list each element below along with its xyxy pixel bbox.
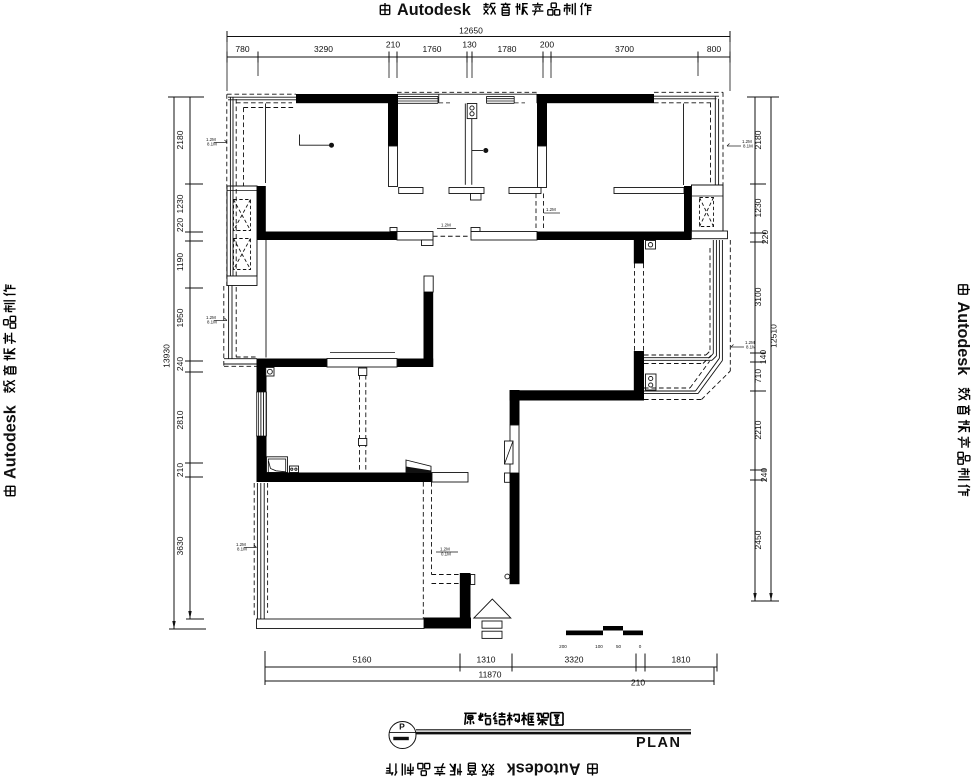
svg-text:100: 100: [595, 644, 603, 649]
svg-text:13930: 13930: [162, 344, 172, 368]
svg-text:1760: 1760: [423, 44, 442, 54]
svg-text:Autodesk: Autodesk: [397, 1, 472, 19]
svg-text:2450: 2450: [753, 530, 763, 549]
svg-text:2810: 2810: [175, 410, 185, 429]
svg-text:PLAN: PLAN: [636, 735, 681, 751]
svg-text:210: 210: [175, 463, 185, 477]
svg-text:3700: 3700: [615, 44, 634, 54]
svg-text:800: 800: [707, 44, 721, 54]
svg-text:8.1M: 8.1M: [743, 144, 753, 149]
svg-text:1230: 1230: [753, 198, 763, 217]
svg-text:220: 220: [760, 230, 770, 244]
svg-text:710: 710: [753, 369, 763, 383]
svg-text:1.2M: 1.2M: [441, 222, 451, 227]
svg-text:1810: 1810: [672, 655, 691, 665]
svg-text:12650: 12650: [459, 26, 483, 36]
svg-text:220: 220: [175, 218, 185, 232]
svg-text:1950: 1950: [175, 308, 185, 327]
svg-text:780: 780: [235, 44, 249, 54]
svg-text:130: 130: [462, 40, 476, 50]
svg-text:3320: 3320: [565, 655, 584, 665]
svg-text:1310: 1310: [477, 655, 496, 665]
svg-text:1190: 1190: [175, 253, 185, 272]
svg-text:2210: 2210: [753, 420, 763, 439]
svg-text:210: 210: [386, 40, 400, 50]
svg-text:0: 0: [639, 644, 642, 649]
svg-text:140: 140: [758, 350, 768, 364]
svg-text:11870: 11870: [478, 670, 501, 680]
svg-text:Autodesk: Autodesk: [506, 759, 581, 777]
svg-text:Autodesk: Autodesk: [954, 302, 972, 377]
svg-text:5160: 5160: [353, 655, 372, 665]
svg-text:3630: 3630: [175, 536, 185, 555]
svg-text:210: 210: [631, 678, 645, 688]
svg-text:1.2M: 1.2M: [546, 207, 556, 212]
svg-text:200: 200: [540, 40, 554, 50]
svg-text:P: P: [399, 722, 405, 732]
svg-text:3100: 3100: [753, 287, 763, 306]
svg-text:2180: 2180: [175, 130, 185, 149]
svg-text:3290: 3290: [314, 44, 333, 54]
svg-text:Autodesk: Autodesk: [2, 404, 20, 479]
svg-text:1230: 1230: [175, 194, 185, 213]
svg-text:50: 50: [616, 644, 622, 649]
svg-text:2180: 2180: [753, 130, 763, 149]
svg-text:1780: 1780: [498, 44, 517, 54]
svg-text:240: 240: [759, 468, 769, 482]
svg-text:240: 240: [175, 357, 185, 371]
svg-text:8.1M: 8.1M: [746, 345, 756, 350]
svg-text:200: 200: [559, 644, 567, 649]
svg-text:12510: 12510: [769, 324, 779, 348]
